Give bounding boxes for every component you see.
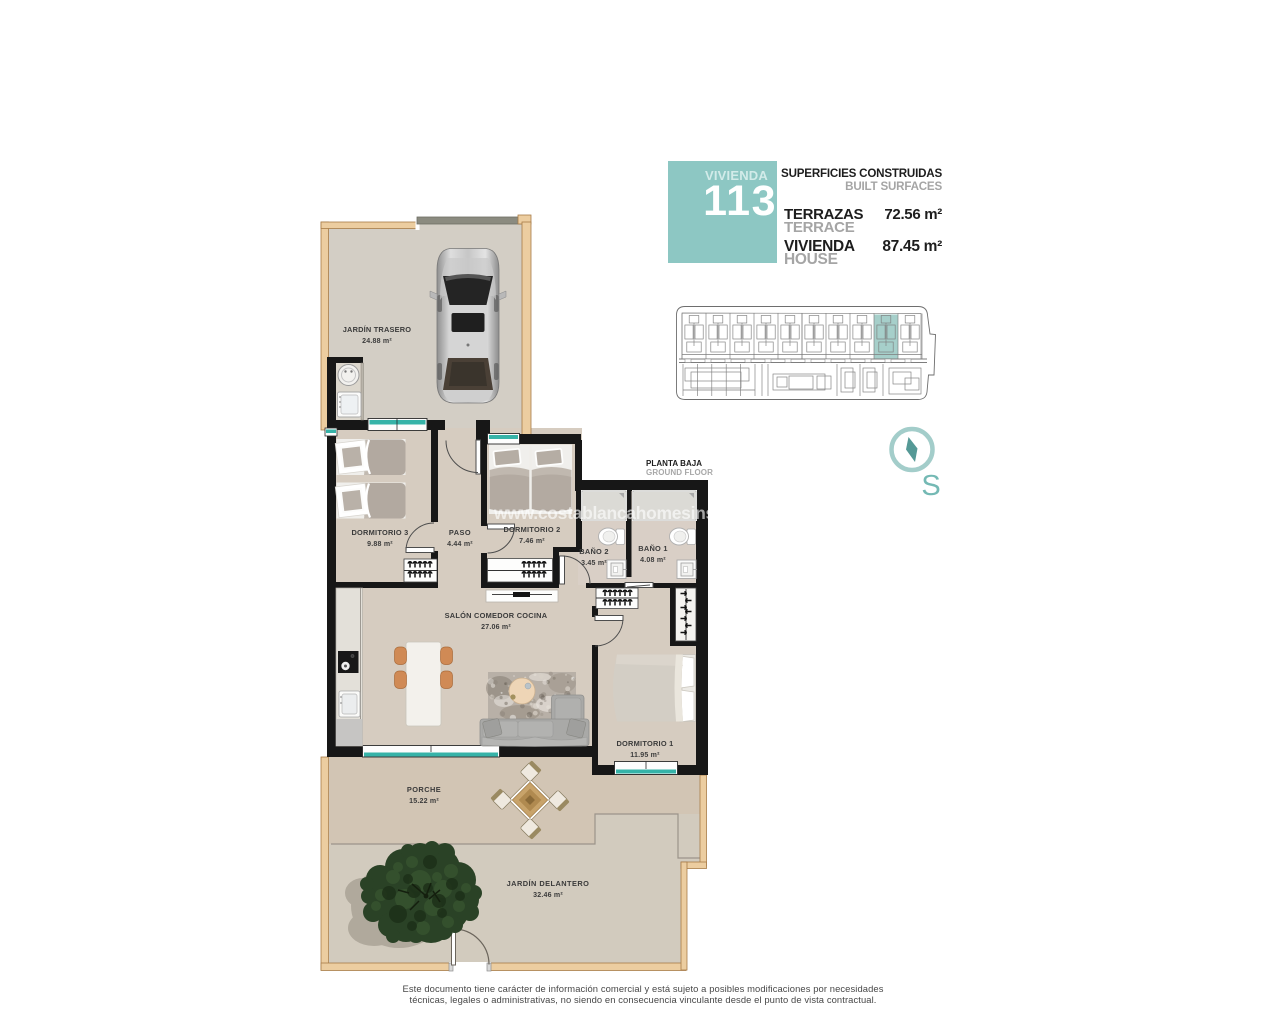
svg-text:BAÑO 1: BAÑO 1 <box>638 544 667 553</box>
svg-text:DORMITORIO 1: DORMITORIO 1 <box>616 739 673 748</box>
svg-text:DORMITORIO 2: DORMITORIO 2 <box>503 525 560 534</box>
svg-text:3.45 m²: 3.45 m² <box>581 560 607 567</box>
svg-text:15.22 m²: 15.22 m² <box>409 798 439 805</box>
svg-text:PASO: PASO <box>449 528 471 537</box>
svg-text:PORCHE: PORCHE <box>407 785 441 794</box>
svg-text:S: S <box>921 470 940 502</box>
svg-text:JARDÍN DELANTERO: JARDÍN DELANTERO <box>507 879 590 888</box>
svg-text:DORMITORIO 3: DORMITORIO 3 <box>351 528 408 537</box>
svg-text:32.46 m²: 32.46 m² <box>533 892 563 899</box>
svg-text:4.08 m²: 4.08 m² <box>640 557 666 564</box>
svg-text:24.88 m²: 24.88 m² <box>362 338 392 345</box>
svg-text:27.06 m²: 27.06 m² <box>481 624 511 631</box>
svg-text:BAÑO 2: BAÑO 2 <box>579 547 608 556</box>
svg-text:SALÓN COMEDOR COCINA: SALÓN COMEDOR COCINA <box>445 611 548 620</box>
svg-text:4.44 m²: 4.44 m² <box>447 541 473 548</box>
svg-text:JARDÍN TRASERO: JARDÍN TRASERO <box>343 325 412 334</box>
svg-text:7.46 m²: 7.46 m² <box>519 538 545 545</box>
svg-text:9.88 m²: 9.88 m² <box>367 541 393 548</box>
svg-text:11.95 m²: 11.95 m² <box>630 752 660 759</box>
